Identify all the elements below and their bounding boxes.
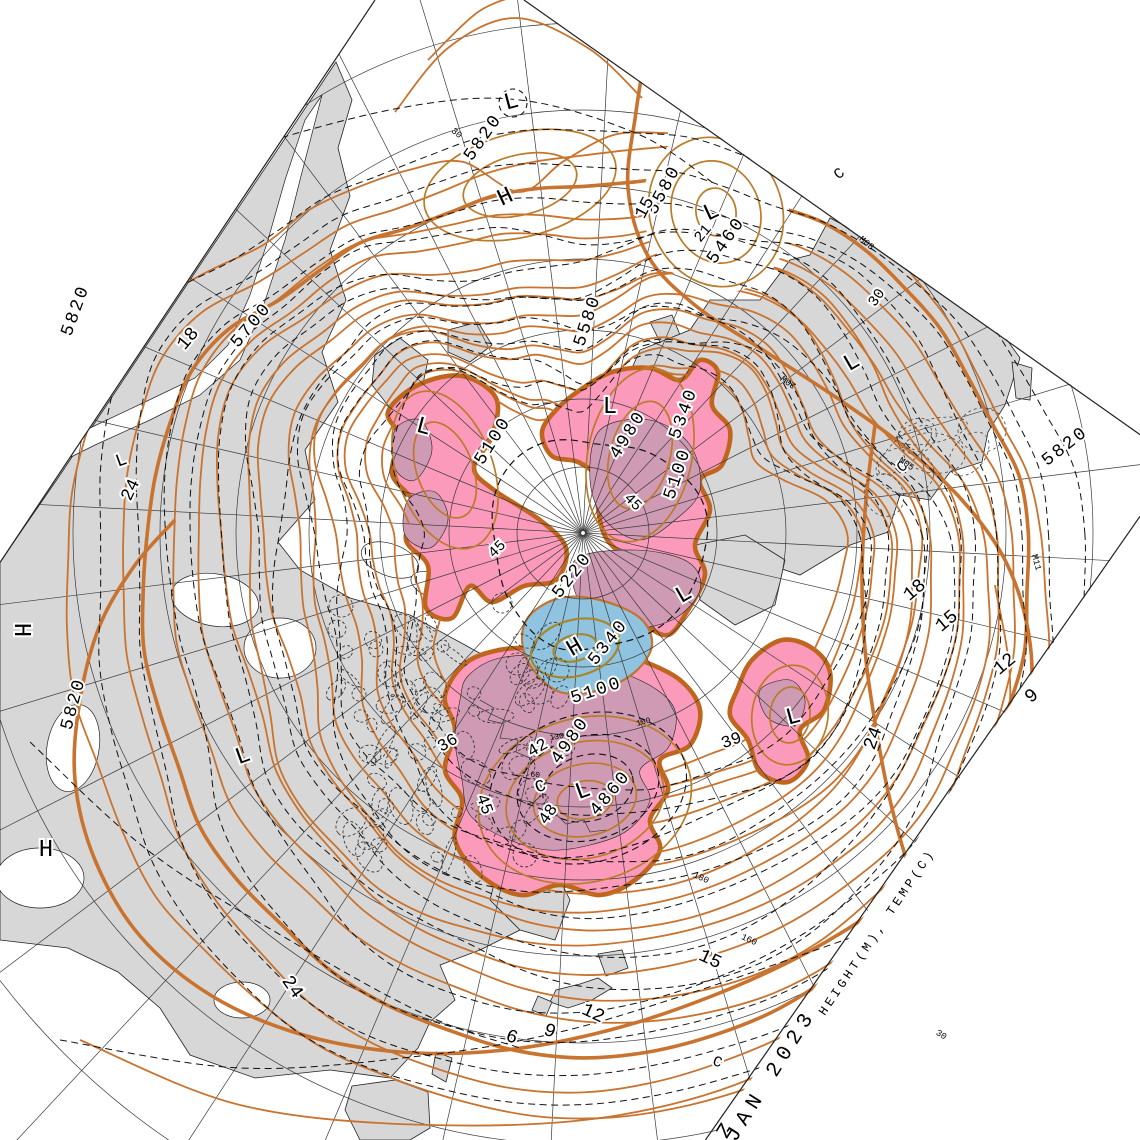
svg-text:H: H bbox=[7, 623, 34, 637]
svg-text:L: L bbox=[603, 394, 617, 421]
svg-text:H: H bbox=[39, 837, 53, 864]
svg-text:60: 60 bbox=[530, 771, 541, 781]
